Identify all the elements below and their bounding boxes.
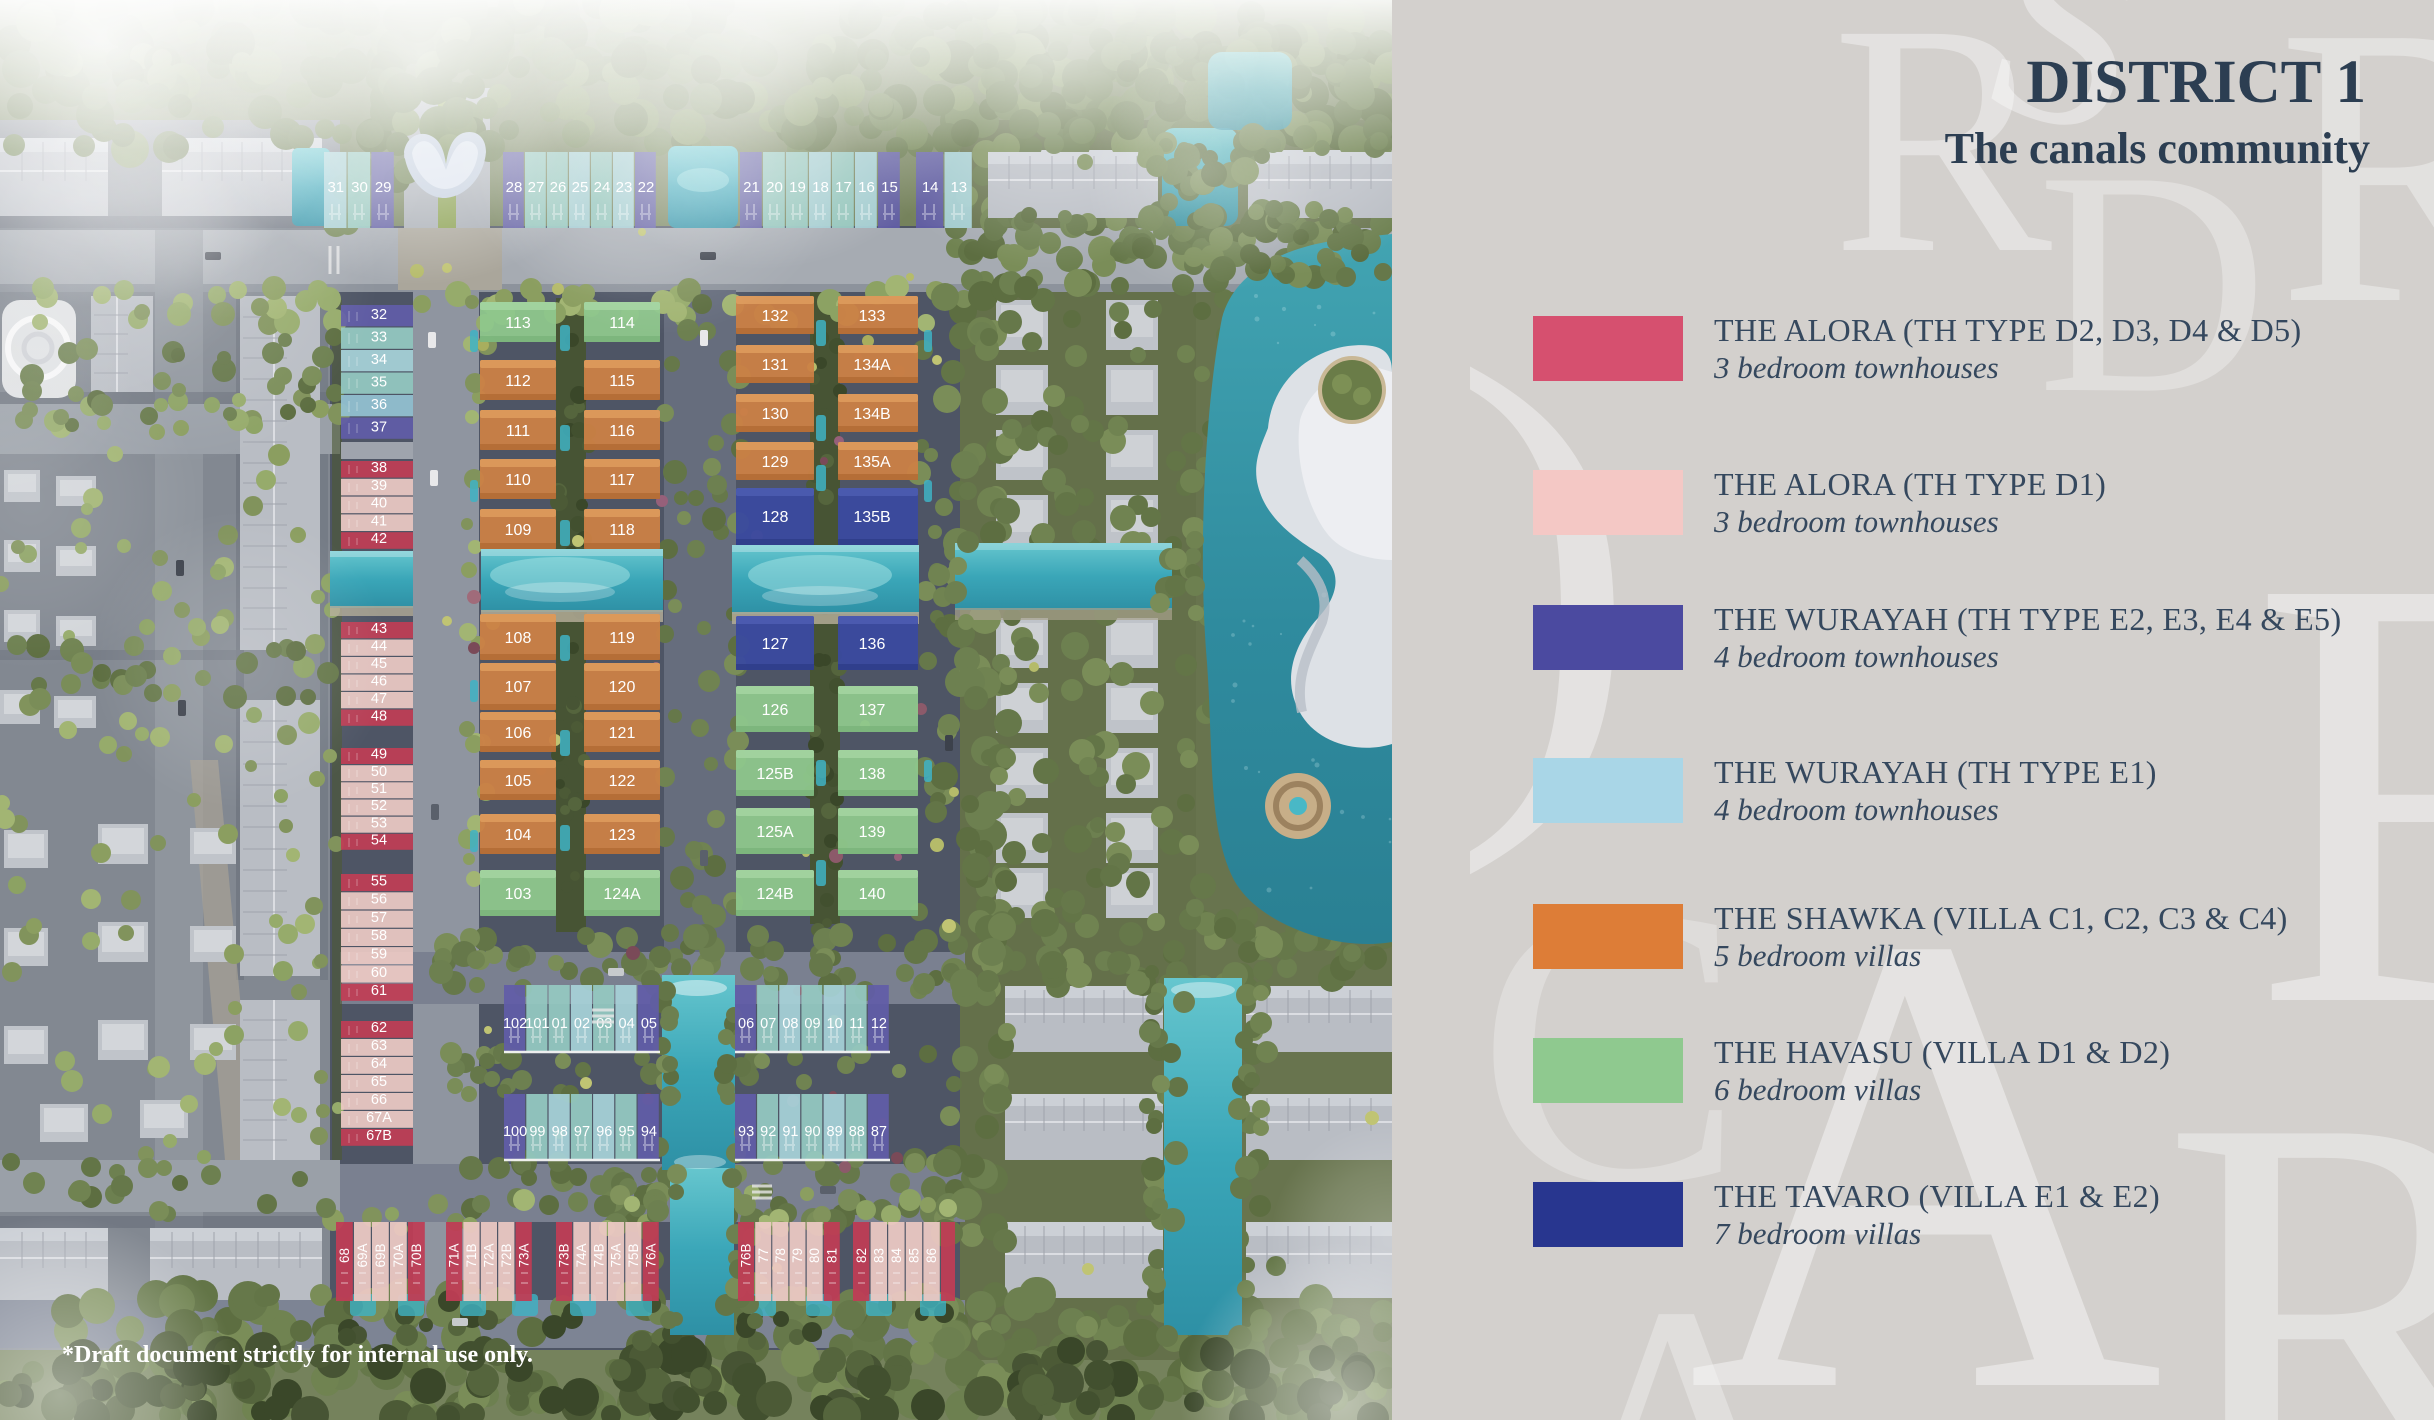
svg-text:01: 01 xyxy=(552,1016,568,1032)
svg-text:*Draft document strictly for i: *Draft document strictly for internal us… xyxy=(62,1342,533,1368)
svg-text:73B: 73B xyxy=(557,1243,572,1267)
svg-text:130: 130 xyxy=(762,406,789,423)
svg-text:115: 115 xyxy=(609,373,635,390)
svg-text:63: 63 xyxy=(371,1038,387,1054)
svg-text:60: 60 xyxy=(371,965,387,981)
svg-text:134B: 134B xyxy=(853,406,890,423)
svg-text:03: 03 xyxy=(596,1016,612,1032)
svg-text:65: 65 xyxy=(371,1074,387,1090)
svg-text:69A: 69A xyxy=(355,1243,370,1267)
svg-text:107: 107 xyxy=(505,679,532,696)
svg-text:59: 59 xyxy=(371,947,387,963)
svg-text:109: 109 xyxy=(505,522,532,539)
svg-text:73A: 73A xyxy=(516,1243,531,1267)
svg-text:35: 35 xyxy=(371,374,387,390)
svg-text:72A: 72A xyxy=(482,1243,497,1267)
svg-text:92: 92 xyxy=(760,1124,776,1140)
svg-text:110: 110 xyxy=(505,472,531,489)
svg-text:93: 93 xyxy=(738,1124,754,1140)
svg-text:77: 77 xyxy=(756,1248,771,1263)
svg-text:134A: 134A xyxy=(853,357,891,374)
svg-text:11: 11 xyxy=(849,1016,864,1032)
svg-text:95: 95 xyxy=(619,1124,635,1140)
svg-text:67A: 67A xyxy=(366,1110,392,1126)
svg-text:101: 101 xyxy=(525,1016,549,1032)
svg-text:112: 112 xyxy=(505,373,531,390)
svg-text:100: 100 xyxy=(503,1124,527,1140)
svg-text:106: 106 xyxy=(505,725,532,742)
svg-text:64: 64 xyxy=(371,1056,387,1072)
svg-text:129: 129 xyxy=(762,454,789,471)
svg-text:82: 82 xyxy=(854,1248,869,1263)
svg-text:74B: 74B xyxy=(591,1243,606,1267)
svg-text:124A: 124A xyxy=(603,886,641,903)
svg-text:127: 127 xyxy=(762,636,789,653)
svg-text:91: 91 xyxy=(782,1124,798,1140)
svg-text:123: 123 xyxy=(609,827,636,844)
svg-text:85: 85 xyxy=(907,1248,922,1263)
svg-text:12: 12 xyxy=(871,1016,887,1032)
svg-text:88: 88 xyxy=(849,1124,865,1140)
svg-text:38: 38 xyxy=(371,460,387,476)
svg-text:72B: 72B xyxy=(499,1243,514,1267)
svg-text:61: 61 xyxy=(371,983,387,999)
svg-text:40: 40 xyxy=(371,496,387,512)
svg-text:125A: 125A xyxy=(756,824,794,841)
svg-text:103: 103 xyxy=(505,886,532,903)
svg-text:135B: 135B xyxy=(853,509,890,526)
svg-text:55: 55 xyxy=(371,873,387,889)
svg-text:49: 49 xyxy=(371,747,387,763)
svg-text:A: A xyxy=(1542,1227,1816,1420)
svg-text:39: 39 xyxy=(371,478,387,494)
svg-text:74A: 74A xyxy=(574,1243,589,1267)
svg-text:54: 54 xyxy=(371,833,387,849)
svg-text:04: 04 xyxy=(619,1016,635,1032)
svg-text:02: 02 xyxy=(574,1016,590,1032)
svg-text:98: 98 xyxy=(552,1124,568,1140)
svg-text:70B: 70B xyxy=(409,1243,424,1267)
svg-text:137: 137 xyxy=(859,702,886,719)
svg-text:09: 09 xyxy=(804,1016,820,1032)
svg-text:07: 07 xyxy=(760,1016,776,1032)
svg-text:42: 42 xyxy=(371,531,387,547)
svg-text:86: 86 xyxy=(924,1248,939,1263)
svg-text:80: 80 xyxy=(807,1248,822,1263)
svg-text:140: 140 xyxy=(859,886,886,903)
svg-text:96: 96 xyxy=(596,1124,612,1140)
svg-text:121: 121 xyxy=(609,725,636,742)
svg-text:52: 52 xyxy=(371,798,387,814)
svg-text:71B: 71B xyxy=(464,1243,479,1267)
svg-text:138: 138 xyxy=(859,766,886,783)
svg-text:75B: 75B xyxy=(626,1243,641,1267)
svg-text:89: 89 xyxy=(827,1124,843,1140)
svg-text:75A: 75A xyxy=(609,1243,624,1267)
svg-text:124B: 124B xyxy=(756,886,793,903)
svg-text:87: 87 xyxy=(871,1124,887,1140)
svg-text:118: 118 xyxy=(609,522,635,539)
svg-text:104: 104 xyxy=(505,827,532,844)
svg-text:36: 36 xyxy=(371,397,387,413)
svg-text:78: 78 xyxy=(773,1248,788,1263)
svg-text:71A: 71A xyxy=(447,1243,462,1267)
svg-text:08: 08 xyxy=(782,1016,798,1032)
svg-text:120: 120 xyxy=(609,679,636,696)
svg-text:132: 132 xyxy=(762,308,789,325)
svg-text:139: 139 xyxy=(859,824,886,841)
svg-text:128: 128 xyxy=(762,509,789,526)
svg-text:99: 99 xyxy=(529,1124,545,1140)
svg-text:90: 90 xyxy=(804,1124,820,1140)
svg-text:84: 84 xyxy=(889,1248,904,1264)
svg-text:51: 51 xyxy=(371,781,387,797)
svg-text:122: 122 xyxy=(609,773,636,790)
svg-text:113: 113 xyxy=(505,315,531,332)
svg-text:69B: 69B xyxy=(373,1243,388,1267)
svg-text:126: 126 xyxy=(762,702,789,719)
svg-text:37: 37 xyxy=(371,419,387,435)
svg-text:119: 119 xyxy=(609,630,635,647)
svg-text:133: 133 xyxy=(859,308,886,325)
svg-text:108: 108 xyxy=(505,630,532,647)
svg-text:57: 57 xyxy=(371,910,387,926)
svg-text:68: 68 xyxy=(337,1248,352,1263)
svg-text:10: 10 xyxy=(827,1016,843,1032)
svg-text:53: 53 xyxy=(371,815,387,831)
svg-text:62: 62 xyxy=(371,1020,387,1036)
svg-text:76A: 76A xyxy=(643,1243,658,1267)
svg-text:105: 105 xyxy=(505,773,532,790)
svg-text:81: 81 xyxy=(824,1248,839,1263)
svg-text:06: 06 xyxy=(738,1016,754,1032)
svg-text:33: 33 xyxy=(371,329,387,345)
svg-text:76B: 76B xyxy=(739,1243,754,1267)
svg-text:136: 136 xyxy=(859,636,886,653)
svg-text:34: 34 xyxy=(371,352,387,368)
svg-text:58: 58 xyxy=(371,928,387,944)
svg-text:41: 41 xyxy=(371,513,387,529)
svg-text:50: 50 xyxy=(371,764,387,780)
svg-text:56: 56 xyxy=(371,892,387,908)
svg-text:94: 94 xyxy=(641,1124,657,1140)
svg-text:79: 79 xyxy=(790,1248,805,1263)
svg-text:70A: 70A xyxy=(391,1243,406,1267)
svg-text:97: 97 xyxy=(574,1124,590,1140)
svg-text:83: 83 xyxy=(871,1248,886,1263)
svg-text:67B: 67B xyxy=(366,1128,392,1144)
svg-text:05: 05 xyxy=(641,1016,657,1032)
svg-text:135A: 135A xyxy=(853,454,891,471)
svg-text:131: 131 xyxy=(762,357,789,374)
svg-text:117: 117 xyxy=(609,472,635,489)
svg-text:66: 66 xyxy=(371,1092,387,1108)
svg-text:116: 116 xyxy=(609,423,635,440)
svg-text:111: 111 xyxy=(506,423,530,440)
svg-text:102: 102 xyxy=(503,1016,527,1032)
svg-text:125B: 125B xyxy=(756,766,793,783)
